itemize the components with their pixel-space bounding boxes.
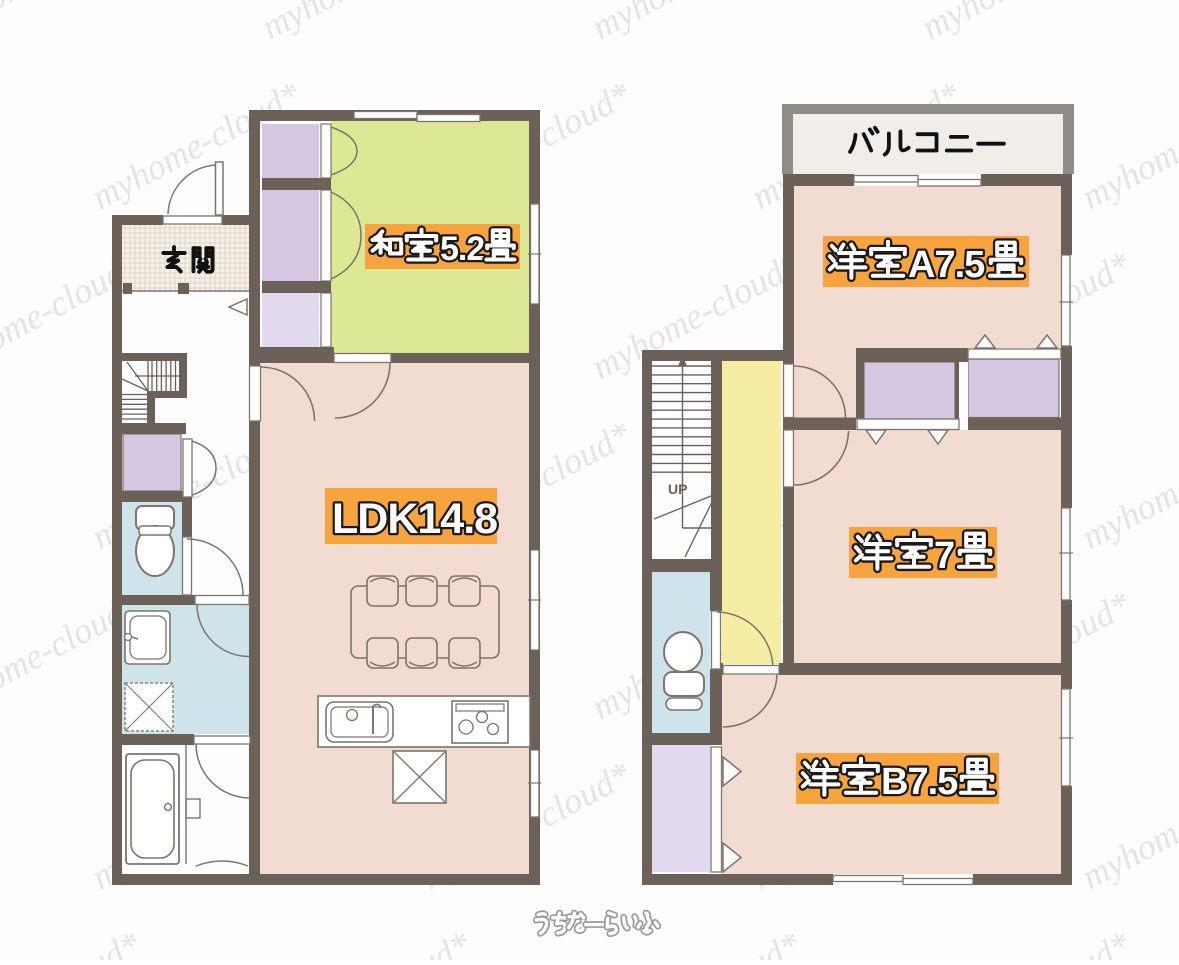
svg-text:B7.5: B7.5 — [881, 761, 958, 803]
svg-text:5.2: 5.2 — [440, 230, 484, 268]
svg-text:LDK14.8: LDK14.8 — [332, 495, 497, 543]
svg-text:7: 7 — [934, 535, 955, 577]
svg-text:A7.5: A7.5 — [908, 244, 985, 286]
svg-text:UP: UP — [668, 481, 687, 497]
